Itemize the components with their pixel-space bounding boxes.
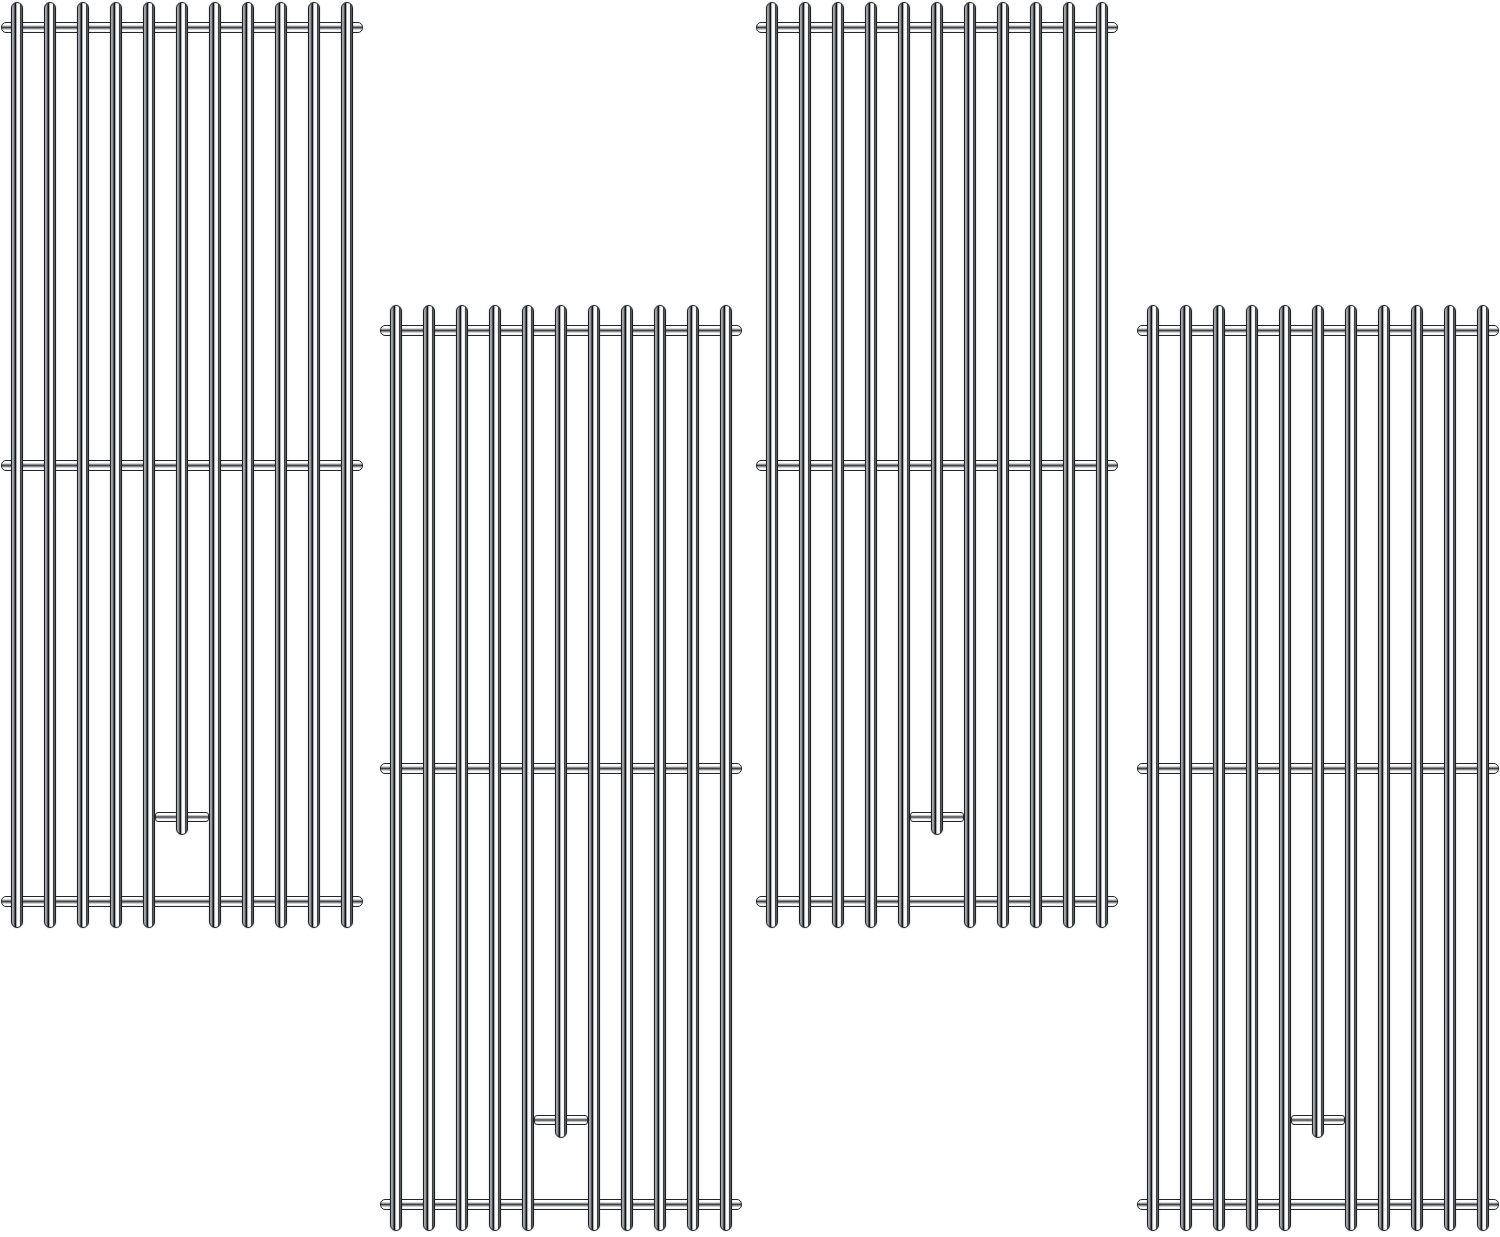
grate-short-rod (555, 305, 567, 1138)
grate-rod (1063, 2, 1075, 928)
grate-rod (654, 305, 666, 1231)
grate-short-rod (931, 2, 943, 835)
grate-rod (1213, 305, 1225, 1231)
grate-rod (522, 305, 534, 1231)
grate-rod (308, 2, 320, 928)
grate-rod (456, 305, 468, 1231)
grate-rod (275, 2, 287, 928)
grate-rod (110, 2, 122, 928)
grate-rod (799, 2, 811, 928)
product-image-canvas (0, 0, 1500, 1237)
grate-rod (964, 2, 976, 928)
grate-rod (1096, 2, 1108, 928)
grate-rod (832, 2, 844, 928)
grate-rod (1147, 305, 1159, 1231)
grate-rod (1411, 305, 1423, 1231)
grate-rod (1345, 305, 1357, 1231)
grate-rod (898, 2, 910, 928)
grate-rod (390, 305, 402, 1231)
grill-grate-2 (380, 305, 742, 1233)
grate-rod (1030, 2, 1042, 928)
grate-rod (1246, 305, 1258, 1231)
grate-rod (766, 2, 778, 928)
grill-grate-1 (1, 2, 363, 930)
grate-rod (865, 2, 877, 928)
grate-rod (341, 2, 353, 928)
grate-short-rod (176, 2, 188, 835)
grate-rod (1477, 305, 1489, 1231)
grate-rod (1180, 305, 1192, 1231)
grate-rod (77, 2, 89, 928)
grate-rod (242, 2, 254, 928)
grate-rod (1444, 305, 1456, 1231)
grate-rod (588, 305, 600, 1231)
grill-grate-3 (756, 2, 1118, 930)
grate-rod (1279, 305, 1291, 1231)
grate-rod (621, 305, 633, 1231)
grate-rod (997, 2, 1009, 928)
grill-grate-4 (1137, 305, 1499, 1233)
grate-rod (11, 2, 23, 928)
grate-rod (209, 2, 221, 928)
grate-rod (44, 2, 56, 928)
grate-rod (489, 305, 501, 1231)
grate-rod (143, 2, 155, 928)
grate-short-rod (1312, 305, 1324, 1138)
grate-rod (423, 305, 435, 1231)
grate-rod (687, 305, 699, 1231)
grate-rod (1378, 305, 1390, 1231)
grate-rod (720, 305, 732, 1231)
